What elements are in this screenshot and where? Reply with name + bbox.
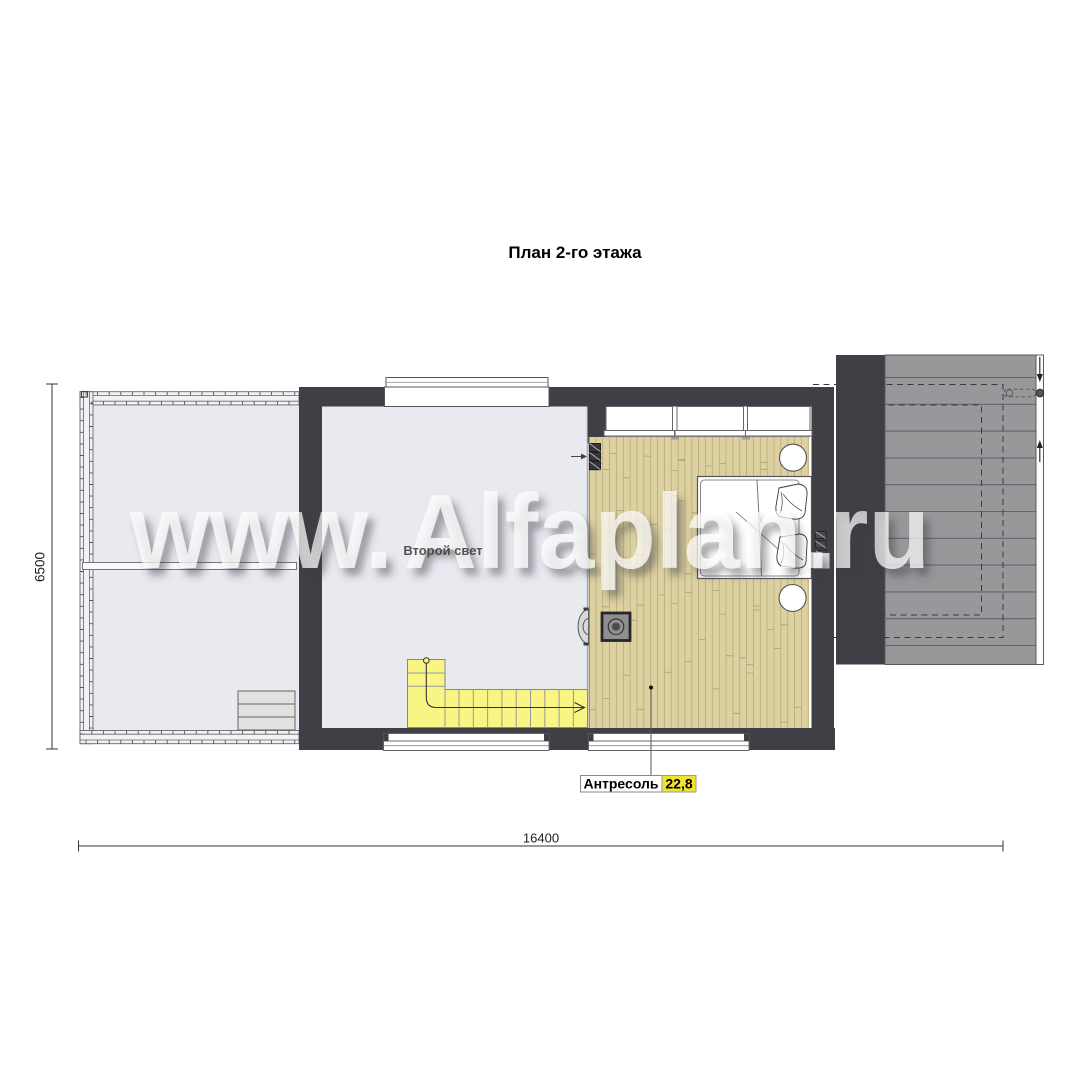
svg-text:Alfaplan.ru: Alfaplan.ru xyxy=(404,473,930,591)
svg-text:6500: 6500 xyxy=(33,552,48,582)
svg-text:www.: www. xyxy=(129,473,393,591)
svg-text:16400: 16400 xyxy=(523,831,559,846)
svg-text:Антресоль: Антресоль xyxy=(583,776,658,792)
svg-text:Второй свет: Второй свет xyxy=(403,543,482,558)
svg-text:22,8: 22,8 xyxy=(665,776,692,792)
